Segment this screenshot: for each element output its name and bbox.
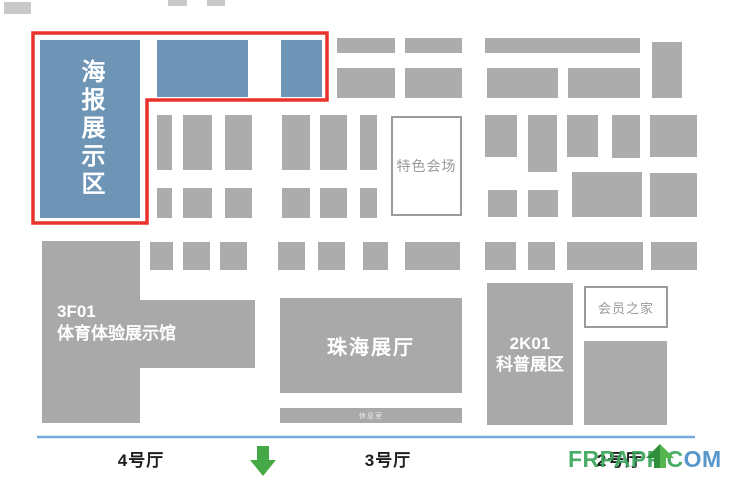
booth-gray — [405, 242, 460, 270]
booth-gray — [485, 242, 516, 270]
sports-hall-code: 3F01 — [57, 301, 176, 323]
watermark: FRPAPP.COM — [568, 446, 722, 473]
booth-gray — [572, 172, 642, 217]
booth-gray — [488, 190, 517, 217]
booth-blue — [281, 40, 322, 97]
booth-gray — [485, 38, 640, 53]
booth-gray — [568, 68, 640, 98]
watermark-blue-text: OM — [684, 446, 722, 472]
booth-gray — [528, 242, 555, 270]
poster-display-area: 海报展示区 — [40, 40, 140, 218]
booth-gray — [183, 188, 212, 218]
booth-gray — [337, 68, 395, 98]
booth-gray — [528, 190, 558, 217]
booth-gray — [360, 188, 377, 218]
watermark-green-text: FRPAPP.C — [568, 446, 684, 472]
booth-gray — [650, 173, 697, 217]
booth-gray — [405, 38, 462, 53]
science-zone-building: 2K01 科普展区 — [487, 283, 573, 425]
booth-gray — [183, 115, 212, 170]
zhuhai-hall: 珠海展厅 — [280, 298, 462, 393]
booth-gray — [278, 242, 305, 270]
members-home-label: 会员之家 — [598, 298, 654, 317]
rest-room-bar: 休息室 — [280, 408, 462, 423]
booth-gray — [487, 68, 558, 98]
booth-gray — [652, 42, 682, 98]
members-home-box: 会员之家 — [584, 286, 668, 328]
poster-area-label: 海报展示区 — [78, 59, 102, 199]
booth-gray — [150, 242, 173, 270]
booth-blue — [157, 40, 248, 97]
hall-4-label: 4号厅 — [99, 446, 183, 471]
booth-gray — [528, 115, 557, 172]
hall-3-label: 3号厅 — [346, 446, 430, 471]
booth-gray — [360, 115, 377, 170]
booth-gray — [405, 68, 462, 98]
booth-gray — [584, 341, 667, 425]
booth-gray — [651, 242, 697, 270]
booth-gray — [157, 188, 172, 218]
booth-gray — [320, 115, 347, 170]
booth-gray — [650, 115, 697, 157]
booth-gray — [320, 188, 347, 218]
booth-faint — [207, 0, 225, 6]
booth-gray — [567, 115, 598, 157]
down-arrow-icon — [250, 446, 276, 476]
booth-faint — [168, 0, 187, 6]
booth-faint — [4, 2, 31, 14]
booth-gray — [485, 115, 517, 157]
booth-gray — [567, 242, 643, 270]
booth-gray — [363, 242, 388, 270]
sports-hall-label: 3F01 体育体验展示馆 — [57, 301, 176, 345]
booth-gray — [225, 188, 252, 218]
exhibition-floor-plan: 海报展示区 3F01 体育体验展示馆 珠海展厅 休息室 2K01 科普展区 特色… — [0, 0, 730, 486]
sports-hall-name: 体育体验展示馆 — [57, 323, 176, 345]
booth-gray — [612, 115, 640, 158]
rest-room-label: 休息室 — [359, 411, 383, 421]
booth-gray — [282, 188, 310, 218]
booth-gray — [183, 242, 210, 270]
booth-gray — [225, 115, 252, 170]
science-zone-code: 2K01 — [510, 333, 551, 354]
booth-gray — [220, 242, 247, 270]
zhuhai-hall-label: 珠海展厅 — [327, 331, 415, 360]
science-zone-name: 科普展区 — [496, 354, 564, 375]
booth-gray — [157, 115, 172, 170]
booth-gray — [318, 242, 345, 270]
special-venue-label: 特色会场 — [397, 156, 457, 176]
booth-gray — [282, 115, 310, 170]
booth-gray — [337, 38, 395, 53]
special-venue-box: 特色会场 — [391, 116, 462, 216]
